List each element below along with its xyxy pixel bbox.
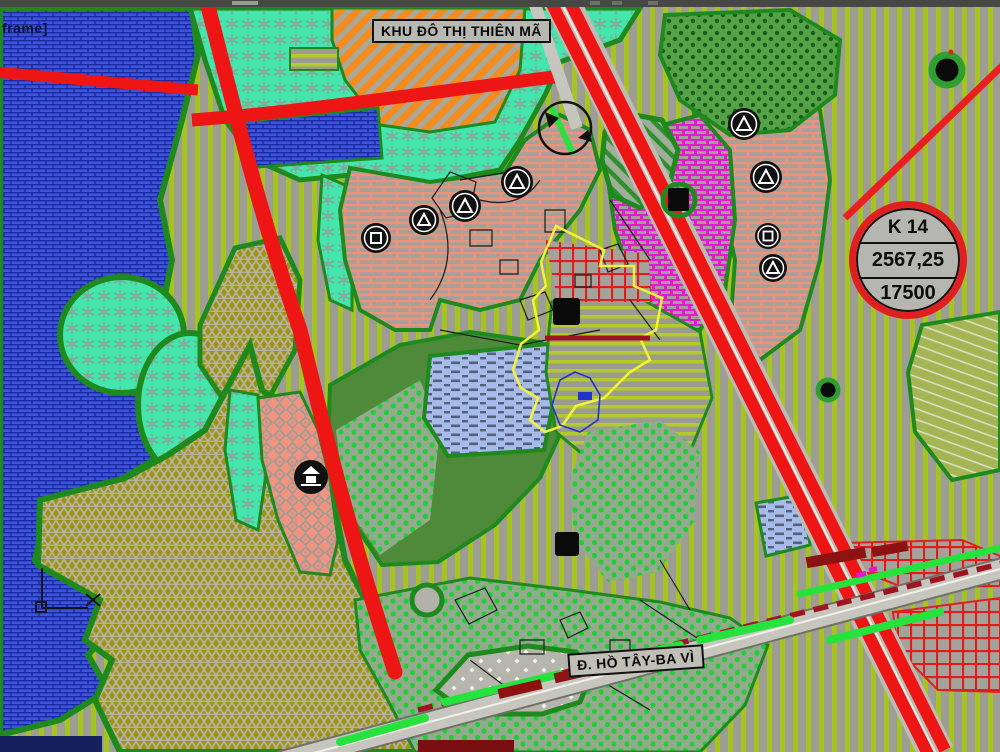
toolbar-icon[interactable] [590,1,600,5]
cad-map-viewport[interactable]: frame] KHU ĐÔ THỊ THIÊN MÃ Đ. HỒ TÂY-BA … [0,0,1000,752]
parcel-code: K 14 [856,208,960,244]
bottom-darkred-strip [418,740,514,752]
zone-gray-circle [412,585,442,615]
pagoda-site-icon [294,460,328,494]
bottom-navy-strip [0,736,102,752]
area-name-label: KHU ĐÔ THỊ THIÊN MÃ [372,19,551,43]
building-block-icon [555,532,579,556]
app-toolbar[interactable] [0,0,1000,7]
zone-blue-dash-field [424,344,554,456]
parcel-badge: K 14 2567,25 17500 [849,201,967,319]
toolbar-mark [232,1,258,5]
viewport-corner-text: frame] [2,20,48,36]
zone-small-strip [290,48,338,70]
toolbar-icon[interactable] [612,1,622,5]
parcel-area-value: 2567,25 [856,244,960,279]
map-canvas[interactable] [0,0,1000,752]
toolbar-icon[interactable] [648,1,658,5]
building-block-icon [553,298,580,325]
